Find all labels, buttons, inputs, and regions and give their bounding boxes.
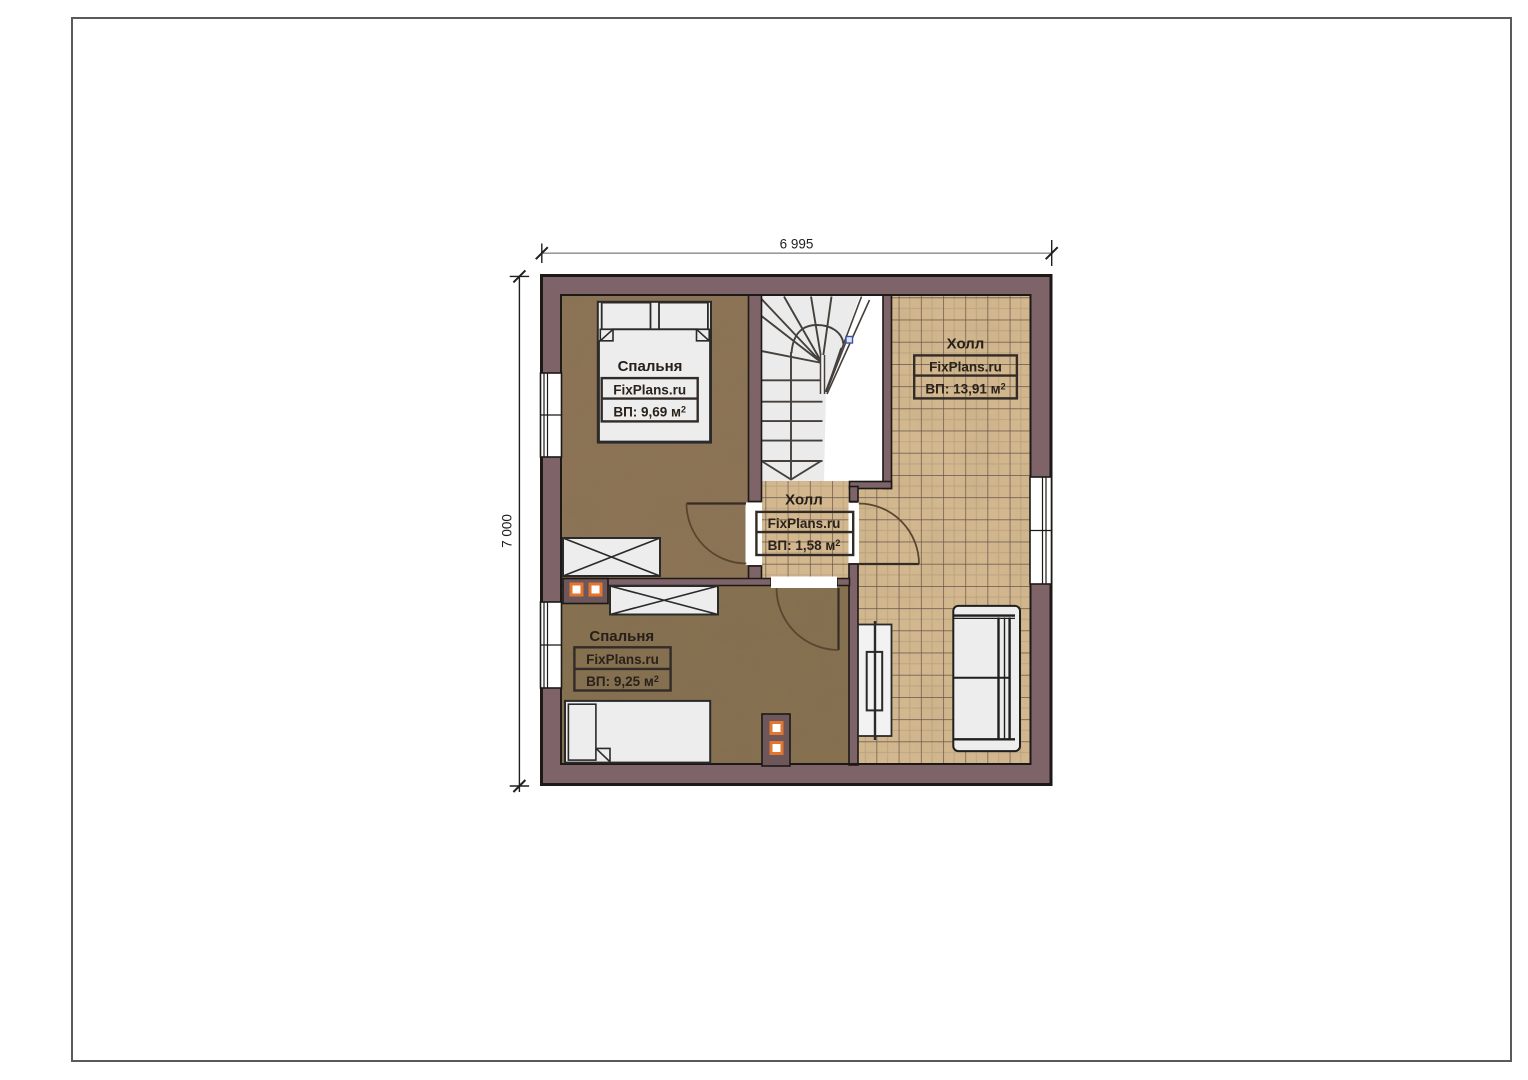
- svg-text:ВП: 1,58 м2: ВП: 1,58 м2: [768, 538, 841, 553]
- svg-text:ВП: 9,69 м2: ВП: 9,69 м2: [613, 405, 686, 420]
- svg-text:FixPlans.ru: FixPlans.ru: [929, 360, 1002, 375]
- svg-text:Спальня: Спальня: [618, 358, 683, 375]
- svg-text:ВП: 13,91 м2: ВП: 13,91 м2: [925, 382, 1005, 397]
- svg-text:Холл: Холл: [947, 336, 985, 353]
- svg-text:ВП: 9,25 м2: ВП: 9,25 м2: [586, 674, 659, 689]
- svg-text:FixPlans.ru: FixPlans.ru: [586, 652, 659, 667]
- svg-text:6 995: 6 995: [780, 237, 814, 252]
- svg-text:FixPlans.ru: FixPlans.ru: [768, 516, 841, 531]
- svg-text:FixPlans.ru: FixPlans.ru: [613, 383, 686, 398]
- svg-text:Спальня: Спальня: [589, 628, 654, 645]
- svg-text:Холл: Холл: [785, 492, 823, 509]
- svg-text:7 000: 7 000: [500, 514, 515, 548]
